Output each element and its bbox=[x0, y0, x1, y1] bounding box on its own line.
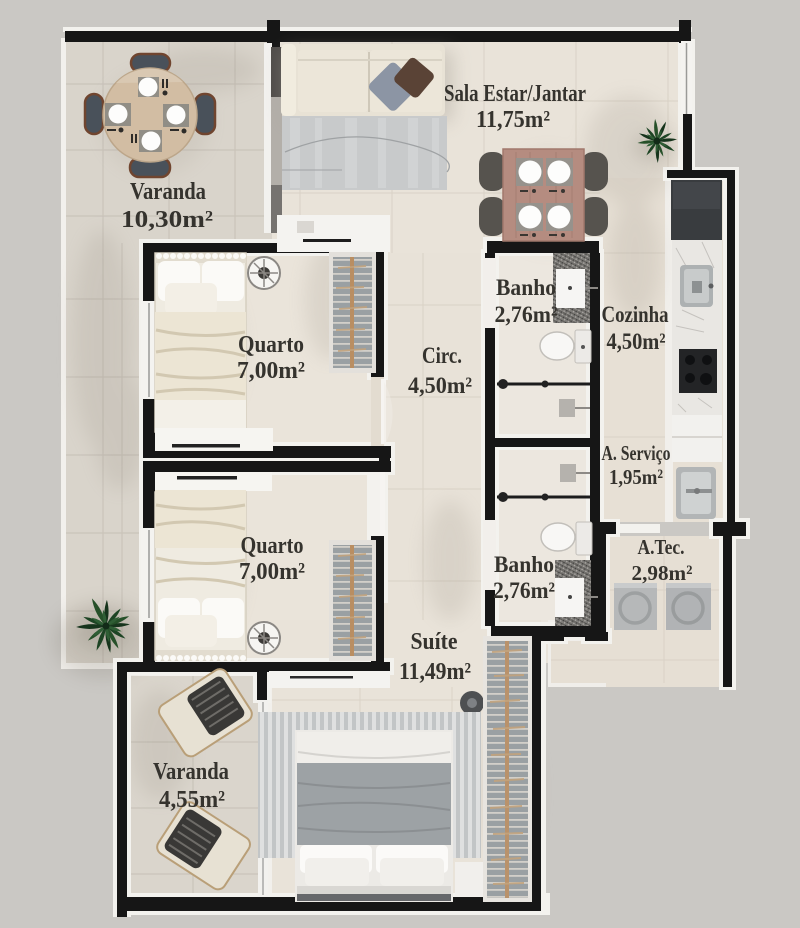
svg-text:4,55m²: 4,55m² bbox=[159, 787, 225, 813]
svg-text:11,49m²: 11,49m² bbox=[399, 659, 471, 685]
svg-text:Cozinha: Cozinha bbox=[602, 302, 669, 327]
svg-text:4,50m²: 4,50m² bbox=[607, 329, 666, 354]
svg-text:1,95m²: 1,95m² bbox=[609, 465, 663, 489]
svg-text:10,30m²: 10,30m² bbox=[121, 207, 213, 233]
svg-text:2,76m²: 2,76m² bbox=[493, 578, 555, 603]
svg-text:Banho: Banho bbox=[496, 275, 556, 300]
svg-text:11,75m²: 11,75m² bbox=[476, 107, 550, 133]
svg-text:4,50m²: 4,50m² bbox=[408, 373, 472, 398]
svg-text:A. Serviço: A. Serviço bbox=[602, 441, 671, 465]
svg-text:Varanda: Varanda bbox=[130, 179, 206, 205]
svg-text:Quarto: Quarto bbox=[238, 332, 304, 358]
svg-text:Varanda: Varanda bbox=[153, 759, 229, 785]
svg-text:A.Tec.: A.Tec. bbox=[638, 535, 685, 559]
svg-text:Sala Estar/Jantar: Sala Estar/Jantar bbox=[444, 81, 586, 107]
svg-text:Circ.: Circ. bbox=[422, 343, 462, 368]
svg-text:Banho: Banho bbox=[494, 552, 554, 577]
svg-text:7,00m²: 7,00m² bbox=[237, 358, 305, 384]
svg-text:7,00m²: 7,00m² bbox=[239, 559, 305, 585]
svg-text:2,98m²: 2,98m² bbox=[632, 561, 693, 585]
svg-text:2,76m²: 2,76m² bbox=[495, 302, 558, 327]
svg-text:Suíte: Suíte bbox=[411, 629, 458, 655]
svg-text:Quarto: Quarto bbox=[241, 533, 304, 559]
